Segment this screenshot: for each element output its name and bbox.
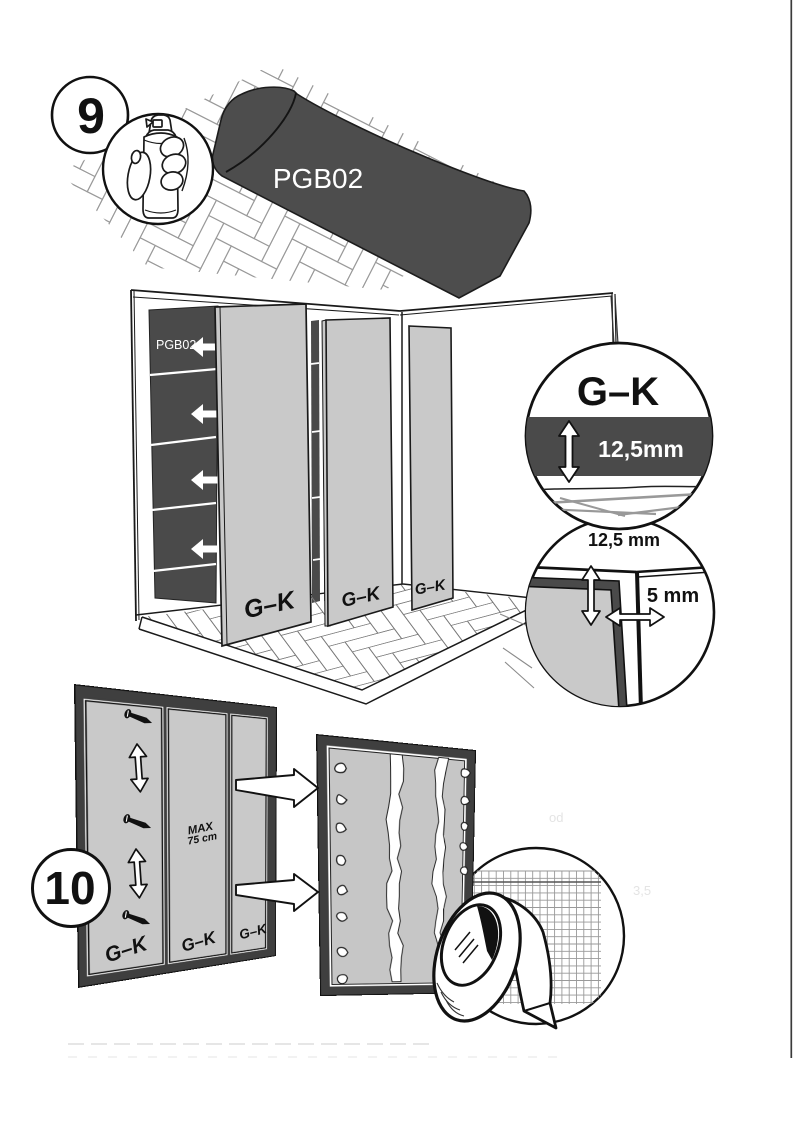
svg-text:G–K: G–K: [102, 932, 152, 968]
svg-text:od: od: [549, 810, 563, 825]
svg-text:10: 10: [44, 862, 95, 914]
svg-text:3,5: 3,5: [633, 883, 651, 898]
svg-text:G–K: G–K: [238, 921, 270, 943]
svg-text:G–K: G–K: [179, 927, 219, 955]
